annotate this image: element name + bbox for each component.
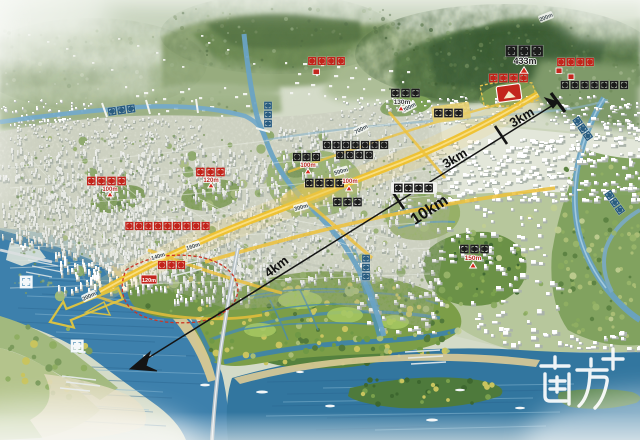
svg-text:130m: 130m [394, 99, 411, 106]
svg-text:433m: 433m [513, 56, 536, 66]
svg-text:120m: 120m [142, 278, 156, 284]
svg-text:150m: 150m [465, 255, 482, 262]
svg-text:100m: 100m [342, 179, 357, 185]
